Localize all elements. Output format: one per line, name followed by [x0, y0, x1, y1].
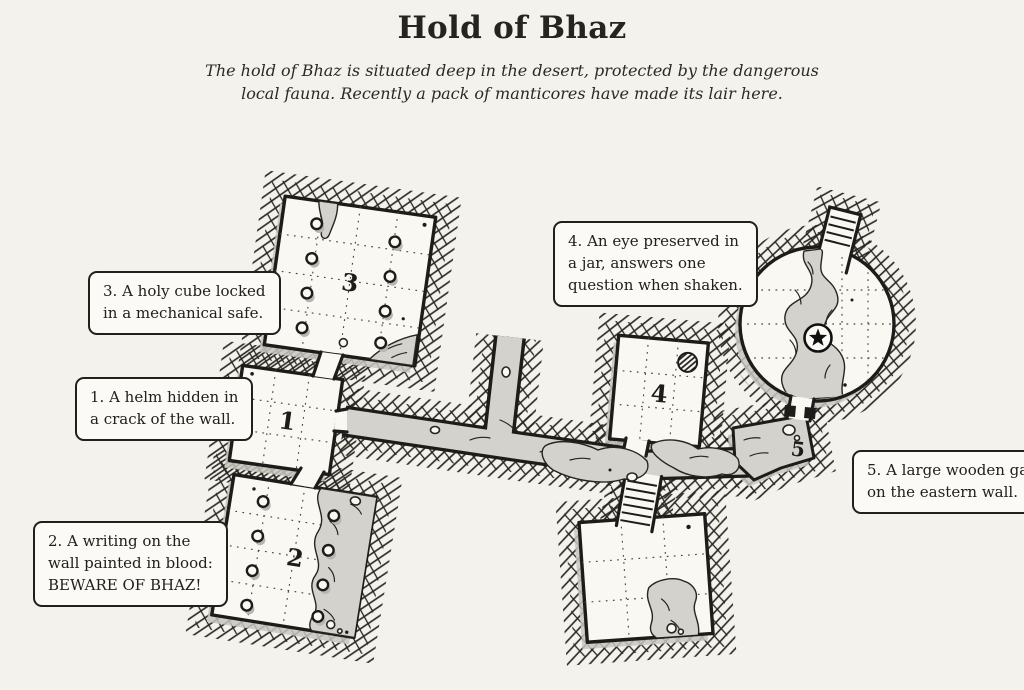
note-room-3: 3. A holy cube locked in a mechanical sa… [88, 271, 281, 335]
note-line: BEWARE OF BHAZ! [48, 575, 213, 597]
star-emblem-icon [805, 325, 832, 352]
room-3: 3 [264, 196, 435, 366]
note-line: 2. A writing on the [48, 531, 213, 553]
note-line: 3. A holy cube locked [103, 281, 266, 303]
room-2: 2 [212, 475, 377, 638]
room-5-label: 5 [790, 436, 807, 462]
note-line: 5. A large wooden gate [867, 460, 1024, 482]
note-line: question when shaken. [568, 275, 743, 297]
note-room-1: 1. A helm hidden in a crack of the wall. [75, 377, 253, 441]
note-line: on the eastern wall. [867, 482, 1024, 504]
note-line: a jar, answers one [568, 253, 743, 275]
room-4-label: 4 [650, 378, 669, 408]
note-line: 4. An eye preserved in [568, 231, 743, 253]
note-line: in a mechanical safe. [103, 303, 266, 325]
gate [784, 396, 816, 421]
room-lower [579, 514, 713, 644]
dungeon-map-page: Hold of Bhaz The hold of Bhaz is situate… [0, 0, 1024, 690]
note-room-4: 4. An eye preserved in a jar, answers on… [553, 221, 758, 307]
room-4: 4 [610, 335, 709, 446]
note-line: a crack of the wall. [90, 409, 238, 431]
note-room-5: 5. A large wooden gate on the eastern wa… [852, 450, 1024, 514]
note-room-2: 2. A writing on the wall painted in bloo… [33, 521, 228, 607]
hatched-disc-icon [677, 352, 698, 373]
note-line: 1. A helm hidden in [90, 387, 238, 409]
note-line: wall painted in blood: [48, 553, 213, 575]
